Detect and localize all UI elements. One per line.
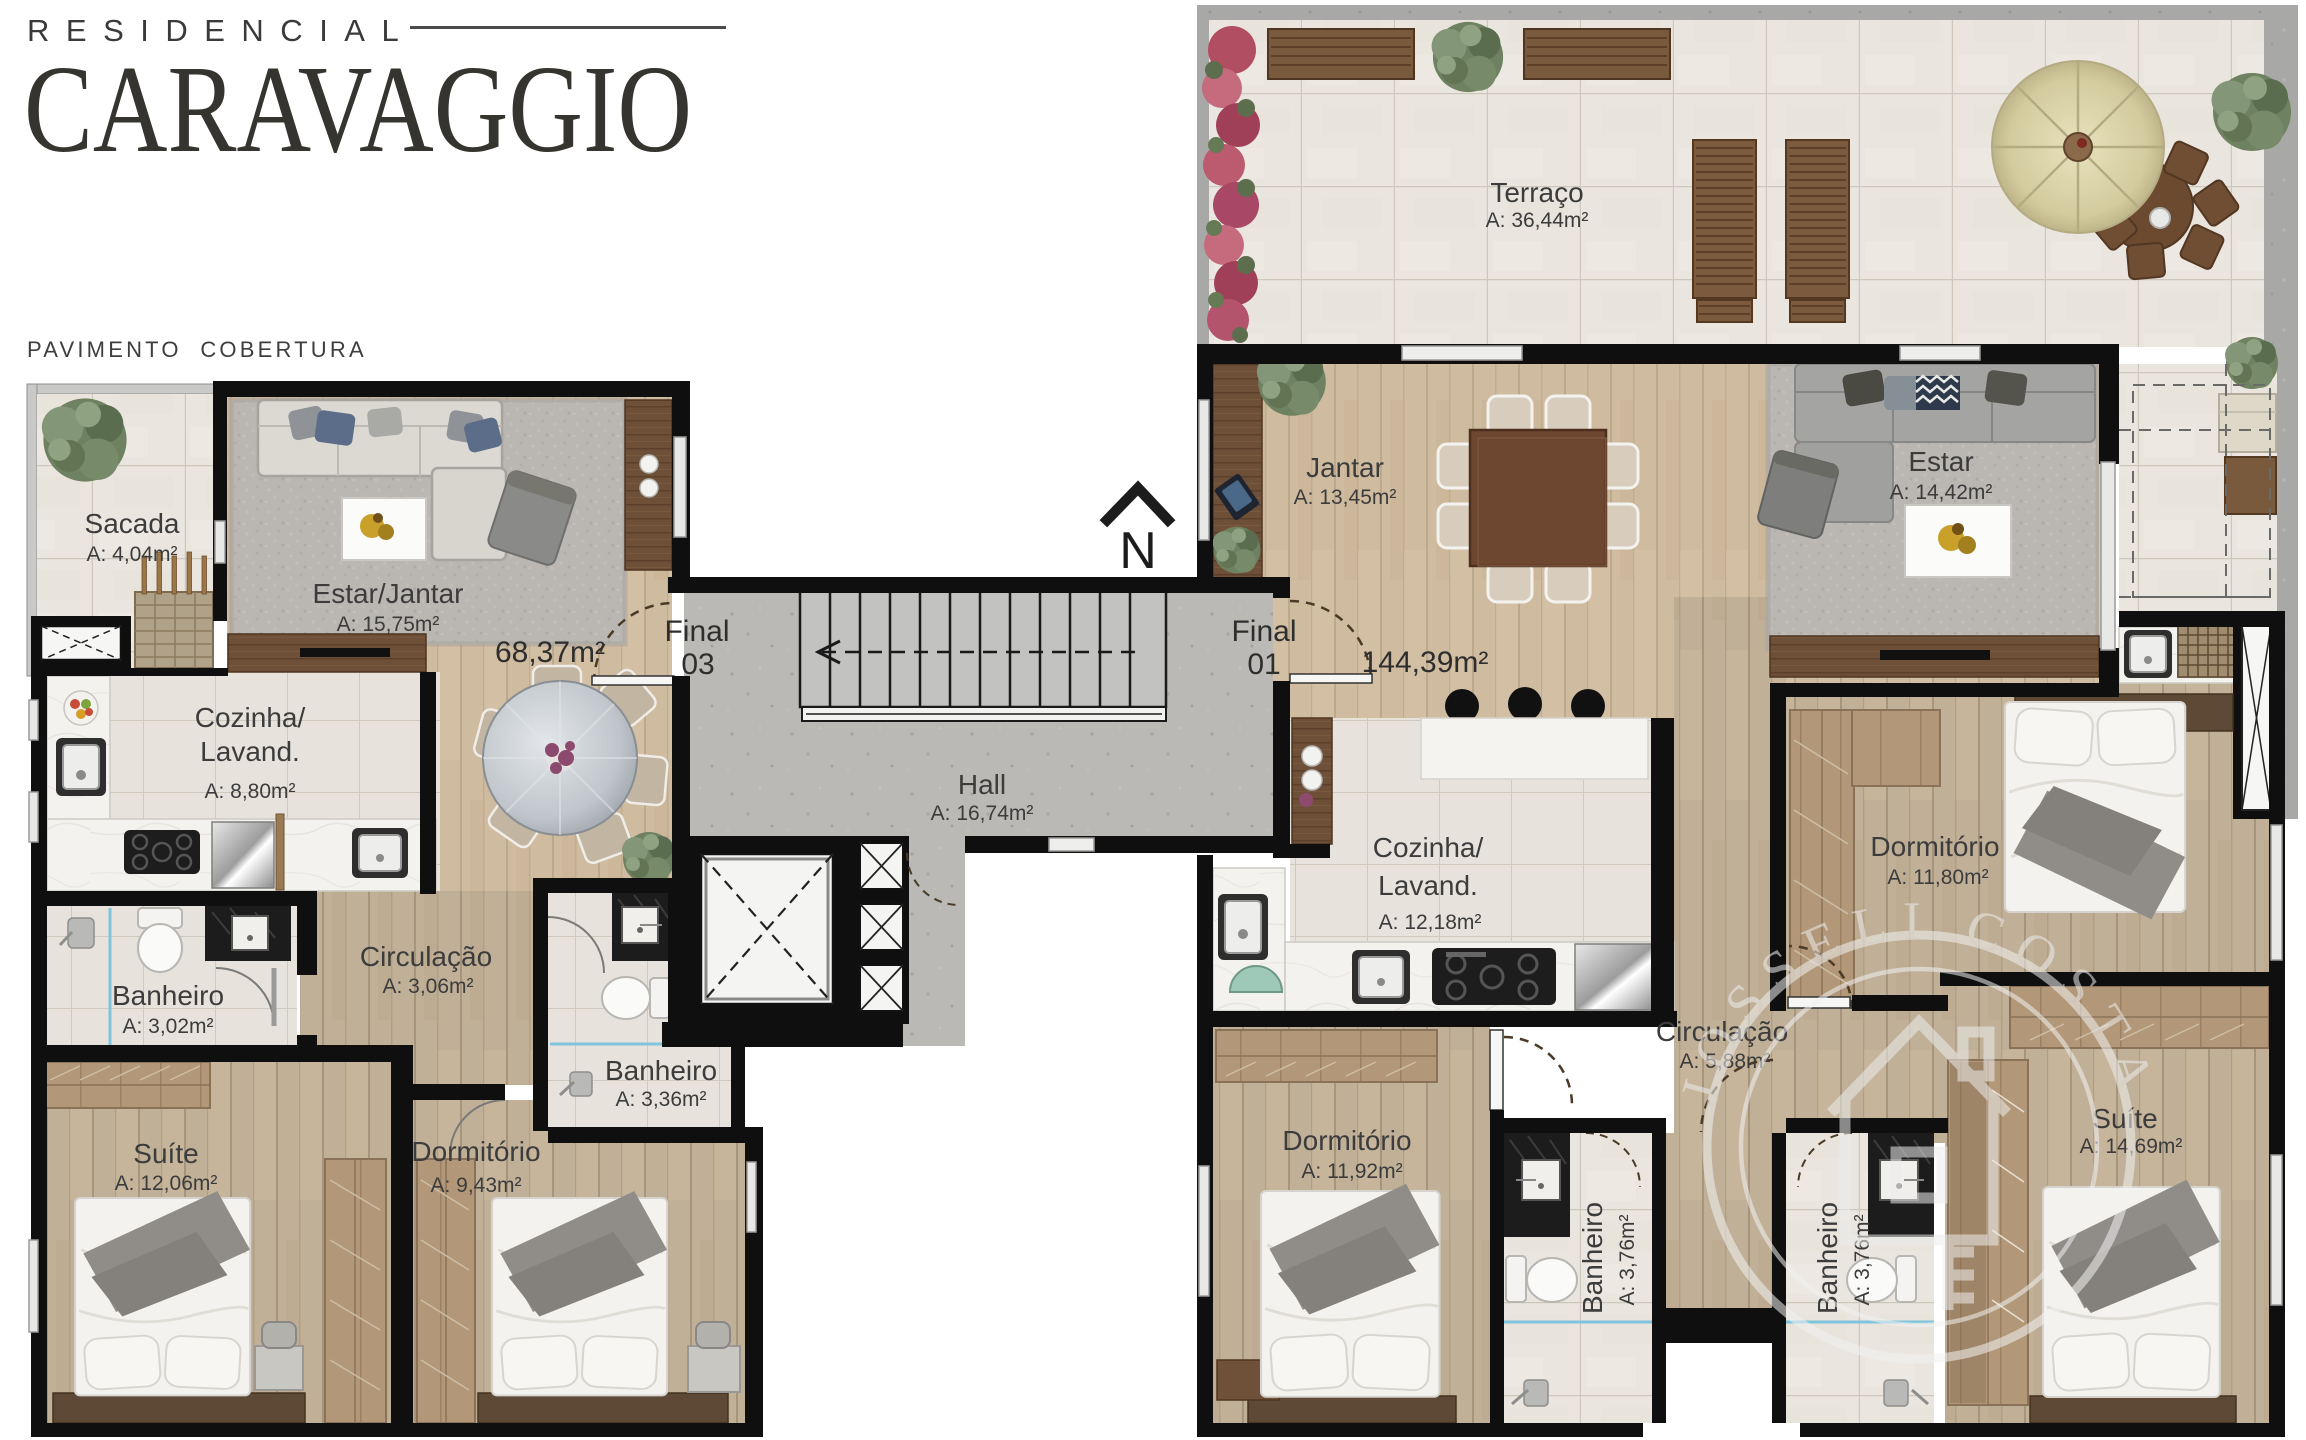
svg-text:Cozinha/: Cozinha/ bbox=[195, 702, 306, 733]
svg-text:A: 9,43m²: A: 9,43m² bbox=[430, 1174, 521, 1197]
svg-text:CARAVAGGIO: CARAVAGGIO bbox=[24, 41, 692, 179]
svg-text:Jantar: Jantar bbox=[1306, 452, 1384, 483]
svg-text:A: 3,02m²: A: 3,02m² bbox=[122, 1015, 213, 1038]
svg-text:N: N bbox=[1119, 522, 1157, 580]
svg-text:Dormitório: Dormitório bbox=[1870, 831, 1999, 862]
svg-text:A: 15,75m²: A: 15,75m² bbox=[337, 613, 440, 636]
svg-text:A: 3,06m²: A: 3,06m² bbox=[382, 975, 473, 998]
svg-text:A: 14,42m²: A: 14,42m² bbox=[1890, 481, 1993, 504]
svg-text:A: 11,80m²: A: 11,80m² bbox=[1887, 866, 1988, 889]
svg-text:Final: Final bbox=[1231, 615, 1296, 648]
svg-text:A: 12,18m²: A: 12,18m² bbox=[1379, 911, 1482, 934]
svg-text:Estar/Jantar: Estar/Jantar bbox=[313, 578, 464, 609]
svg-text:Cozinha/: Cozinha/ bbox=[1373, 832, 1484, 863]
svg-text:144,39m²: 144,39m² bbox=[1362, 646, 1489, 679]
svg-text:A: 12,06m²: A: 12,06m² bbox=[115, 1172, 218, 1195]
svg-text:A: 3,76m²: A: 3,76m² bbox=[1616, 1214, 1639, 1305]
svg-text:03: 03 bbox=[681, 648, 714, 681]
svg-text:PAVIMENTO COBERTURA: PAVIMENTO COBERTURA bbox=[27, 337, 367, 362]
svg-text:A: 16,74m²: A: 16,74m² bbox=[931, 802, 1034, 825]
svg-text:Banheiro: Banheiro bbox=[605, 1055, 717, 1086]
svg-text:Banheiro: Banheiro bbox=[1577, 1202, 1608, 1314]
svg-text:A: 3,36m²: A: 3,36m² bbox=[615, 1088, 706, 1111]
svg-text:01: 01 bbox=[1247, 648, 1280, 681]
svg-text:Estar: Estar bbox=[1908, 446, 1973, 477]
svg-text:Terraço: Terraço bbox=[1490, 177, 1583, 208]
svg-text:A: 3,76m²: A: 3,76m² bbox=[1851, 1214, 1874, 1305]
svg-text:Circulação: Circulação bbox=[360, 941, 492, 972]
svg-text:A: 8,80m²: A: 8,80m² bbox=[204, 780, 295, 803]
svg-text:Lavand.: Lavand. bbox=[1378, 870, 1478, 901]
svg-text:68,37m²: 68,37m² bbox=[495, 636, 605, 669]
svg-text:Banheiro: Banheiro bbox=[112, 980, 224, 1011]
svg-text:A: 13,45m²: A: 13,45m² bbox=[1294, 486, 1397, 509]
svg-text:Lavand.: Lavand. bbox=[200, 736, 300, 767]
svg-text:A: 11,92m²: A: 11,92m² bbox=[1301, 1160, 1402, 1183]
svg-text:Sacada: Sacada bbox=[85, 508, 180, 539]
svg-text:Hall: Hall bbox=[958, 769, 1006, 800]
svg-text:A: 36,44m²: A: 36,44m² bbox=[1486, 209, 1589, 232]
svg-text:Dormitório: Dormitório bbox=[411, 1136, 540, 1167]
svg-text:Dormitório: Dormitório bbox=[1282, 1125, 1411, 1156]
svg-text:Suíte: Suíte bbox=[133, 1138, 198, 1169]
svg-text:A: 4,04m²: A: 4,04m² bbox=[86, 543, 177, 566]
svg-text:Final: Final bbox=[664, 615, 729, 648]
